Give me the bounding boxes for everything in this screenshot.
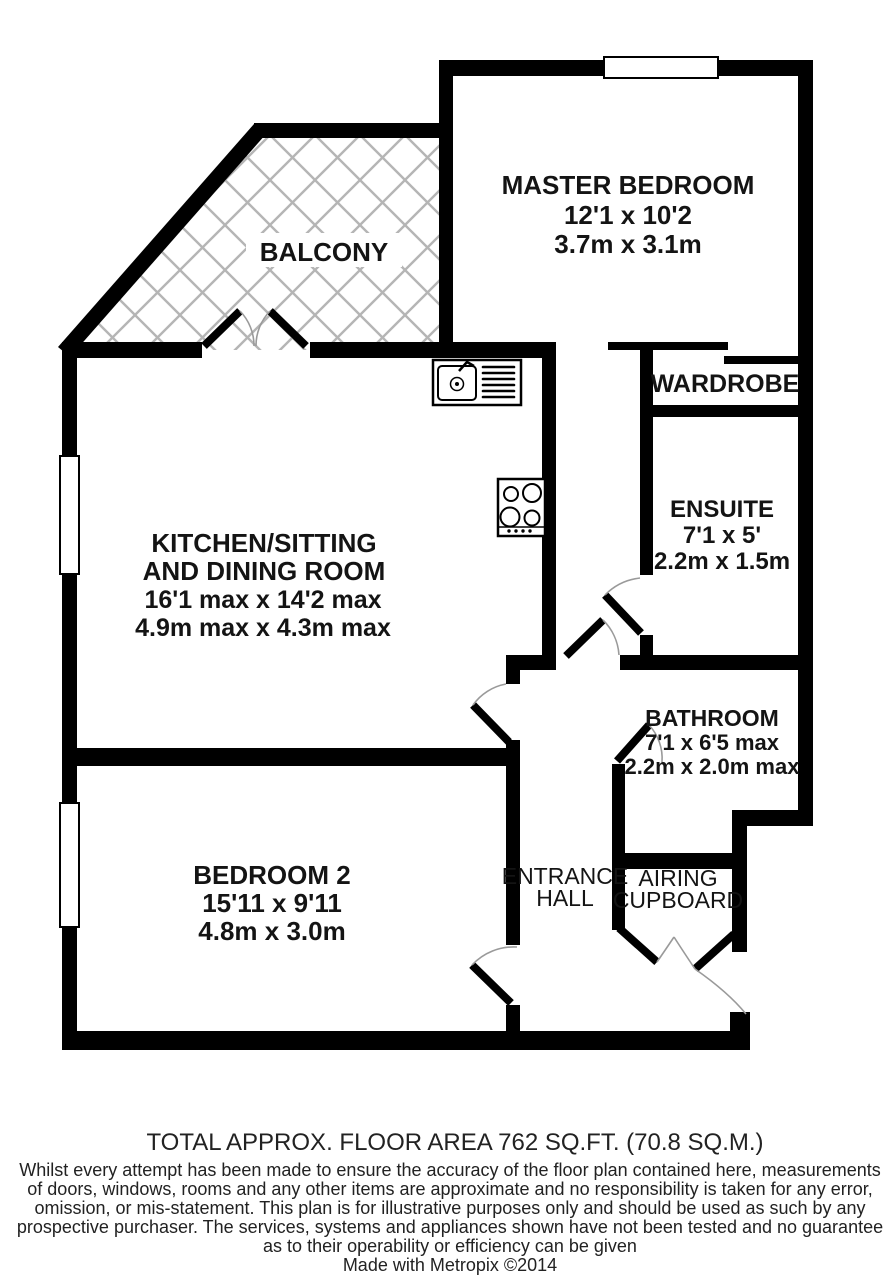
wall-hall-left-upper [506,670,520,684]
wall-right-upper [798,60,813,812]
wall-kitchen-top-left [62,342,202,358]
bathroom-size-imperial: 7'1 x 6'5 max [645,730,780,755]
wall-right-bottom-post [730,1012,750,1050]
hob-icon [498,479,545,536]
wardrobe-sliding-door-a [608,342,728,350]
disclaimer-line: prospective purchaser. The services, sys… [17,1217,883,1237]
wall-ensuite-left-stub [640,635,653,657]
bedroom2-size-imperial: 15'11 x 9'11 [202,888,342,918]
bathroom-size-metric: 2.2m x 2.0m max [625,754,801,779]
kitchen-size-metric: 4.9m max x 4.3m max [135,614,391,642]
wardrobe-label: WARDROBE [651,370,800,398]
wardrobe-sliding-door-b [724,356,801,364]
disclaimer-line: Whilst every attempt has been made to en… [19,1160,880,1180]
wall-kitchen-left-upper [62,342,77,458]
wall-wardrobe-bottom [648,405,803,417]
kitchen-size-imperial: 16'1 max x 14'2 max [144,586,381,614]
window-bedroom2 [60,803,79,927]
credit-text: Made with Metropix ©2014 [343,1255,557,1275]
bathroom-label: BATHROOM [645,705,779,731]
total-area-text: TOTAL APPROX. FLOOR AREA 762 SQ.FT. (70.… [146,1129,763,1156]
wall-bathroom-top [620,655,813,670]
ensuite-size-metric: 2.2m x 1.5m [654,548,790,575]
wall-master-left [439,60,453,356]
wall-bathroom-step [732,810,813,826]
window-kitchen [60,456,79,574]
disclaimer-line: omission, or mis-statement. This plan is… [34,1198,865,1218]
kitchen-label-line1: KITCHEN/SITTING [151,528,376,558]
wall-kitchen-bottom [62,748,510,766]
sink-icon [433,360,521,405]
window-master-bedroom [604,57,718,78]
entrance-hall-label-line2: HALL [536,885,594,911]
master-bedroom-label: MASTER BEDROOM [502,170,755,200]
airing-cupboard-label-line2: CUPBOARD [613,887,743,913]
wall-hall-left-lower [506,740,520,945]
wall-bedroom2-left-upper [62,766,77,805]
disclaimer-line: as to their operability or efficiency ca… [263,1236,637,1256]
disclaimer-line: of doors, windows, rooms and any other i… [27,1179,872,1199]
wall-bottom [62,1031,750,1050]
bedroom2-size-metric: 4.8m x 3.0m [198,916,345,946]
ensuite-size-imperial: 7'1 x 5' [683,522,761,549]
kitchen-label-line2: AND DINING ROOM [143,556,386,586]
floor-plan: MASTER BEDROOM 12'1 x 10'2 3.7m x 3.1m B… [0,0,894,1280]
master-bedroom-size-metric: 3.7m x 3.1m [554,229,701,259]
bedroom2-label: BEDROOM 2 [193,860,350,890]
ensuite-label: ENSUITE [670,496,774,523]
wall-balcony-top [254,123,452,138]
balcony-label: BALCONY [260,237,389,267]
wall-kitchen-left-lower [62,572,77,766]
wall-hall-stub [506,655,556,670]
master-bedroom-size-imperial: 12'1 x 10'2 [564,200,692,230]
wall-kitchen-top-right [310,342,556,358]
